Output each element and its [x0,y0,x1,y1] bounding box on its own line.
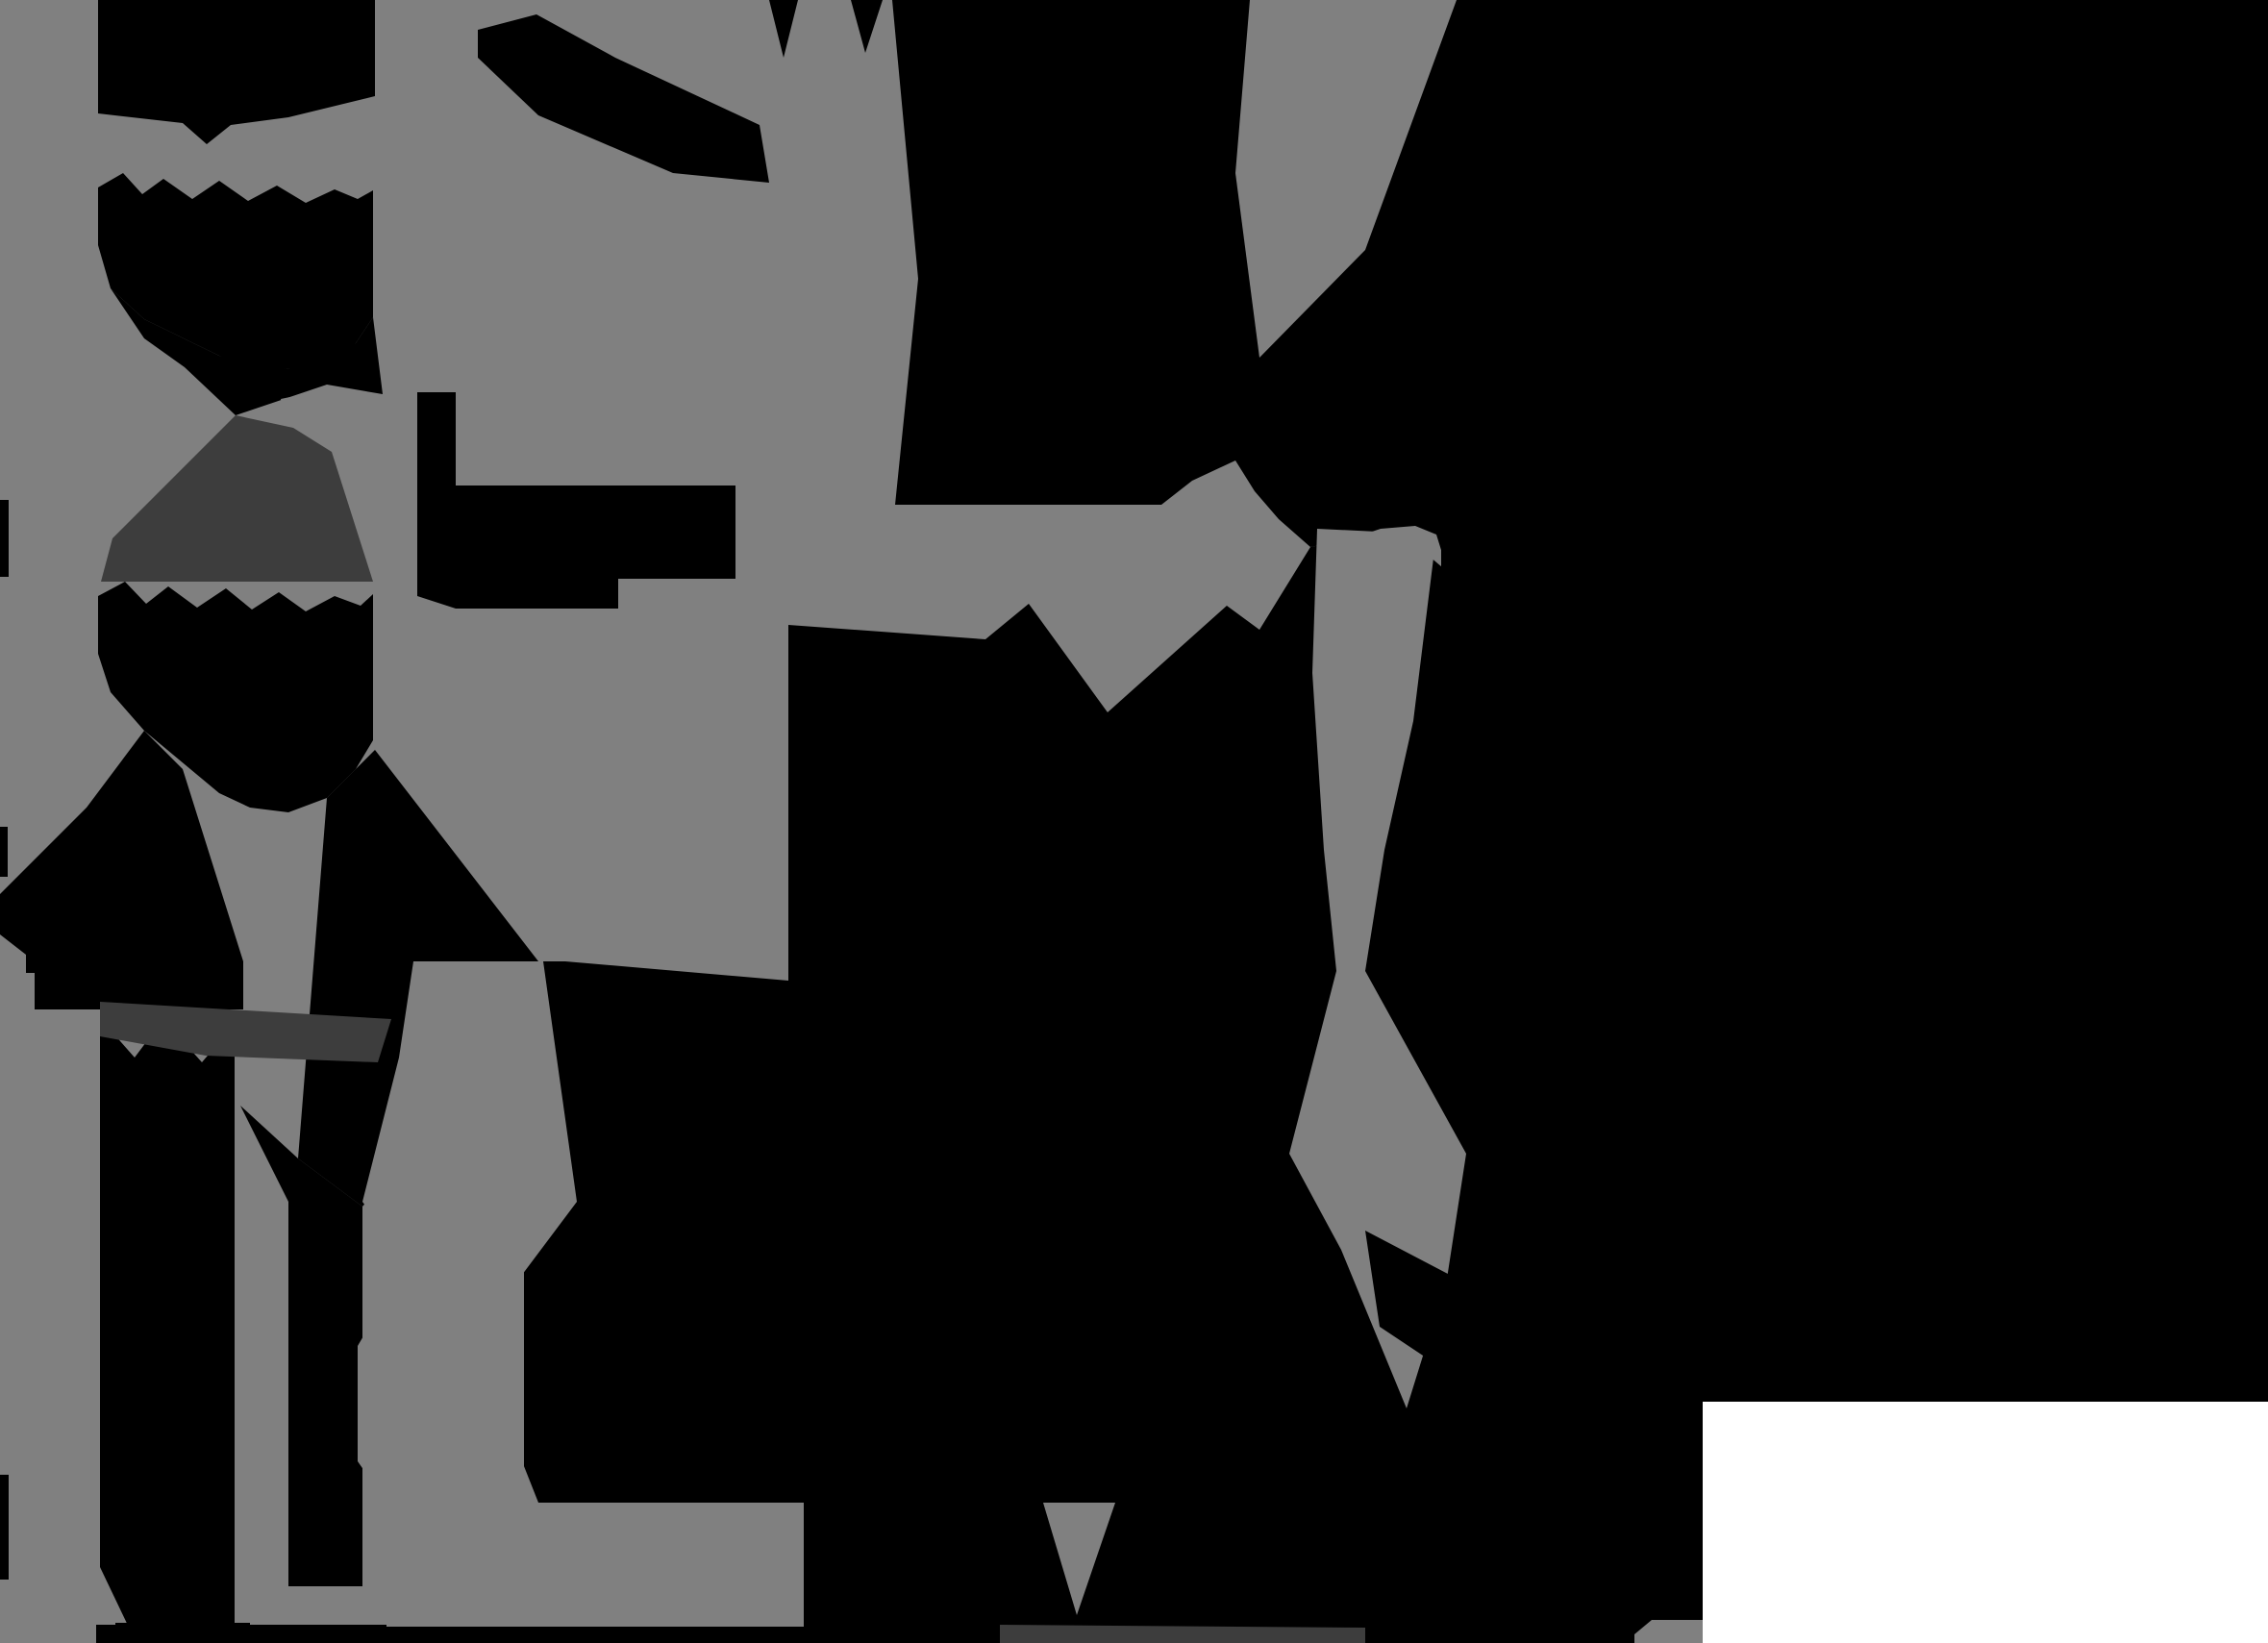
vertical-bar-left [100,1018,235,1631]
posterized-abstract-image [0,0,2268,1643]
left-edge-sliver [0,500,9,577]
right-black-slab [1441,0,2268,1643]
white-rectangle [1703,1402,2268,1643]
abstract-shapes-canvas [0,0,2268,1643]
shadow-strip-bottom [1000,1625,1365,1643]
left-edge-rect-lower [0,1475,9,1580]
left-edge-hand-blob [26,870,68,973]
left-edge-rect-upper [0,827,8,877]
bottom-black-strip [96,1625,1000,1643]
